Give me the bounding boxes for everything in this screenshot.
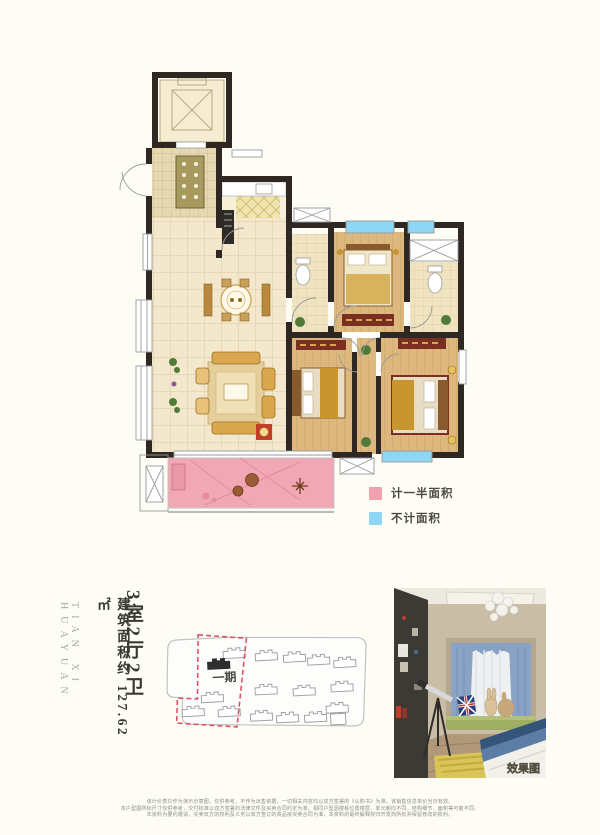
project-name-en: TIAN XI HUAYUAN: [58, 602, 80, 782]
legend-item-uncounted-area: 不计面积: [369, 510, 454, 526]
legend-item-half-area: 计一半面积: [369, 485, 454, 501]
bedroom-photo: 效果图: [394, 588, 546, 778]
site-plan-sketch: 一期: [163, 620, 391, 770]
entry-cabinet: [176, 156, 204, 208]
phase1-label: 一期: [212, 669, 237, 685]
uncounted-area-label: 不计面积: [391, 510, 441, 526]
unit-area-prefix: 建筑面积约: [115, 597, 130, 677]
floor-plan: [0, 0, 600, 560]
disclaimer-line: 本资料为要约邀请，买卖双方的权利及义务以双方签订的商品房买卖合同为准，本资料的最…: [60, 812, 540, 819]
half-area-label: 计一半面积: [391, 485, 454, 501]
listing-image: 计一半面积 不计面积 TIAN XI HUAYUAN 3室2厅2卫 建筑面积约1…: [0, 0, 600, 835]
area-legend: 计一半面积 不计面积: [369, 485, 454, 526]
unit-area: 建筑面积约127.62㎡: [92, 597, 132, 747]
photo-watermark: 效果图: [507, 761, 540, 775]
disclaimer: 该计价表只作为演示示意图，仅供参考，不作为出售依据，一切相关内容均以双方签署的《…: [60, 799, 540, 819]
half-area-swatch: [369, 487, 382, 500]
union-jack-pillow: [457, 695, 476, 716]
uncounted-area-swatch: [369, 512, 382, 525]
balcony: [168, 458, 334, 512]
disclaimer-line: 该计价表只作为演示示意图，仅供参考，不作为出售依据，一切相关内容均以双方签署的《…: [60, 799, 540, 806]
